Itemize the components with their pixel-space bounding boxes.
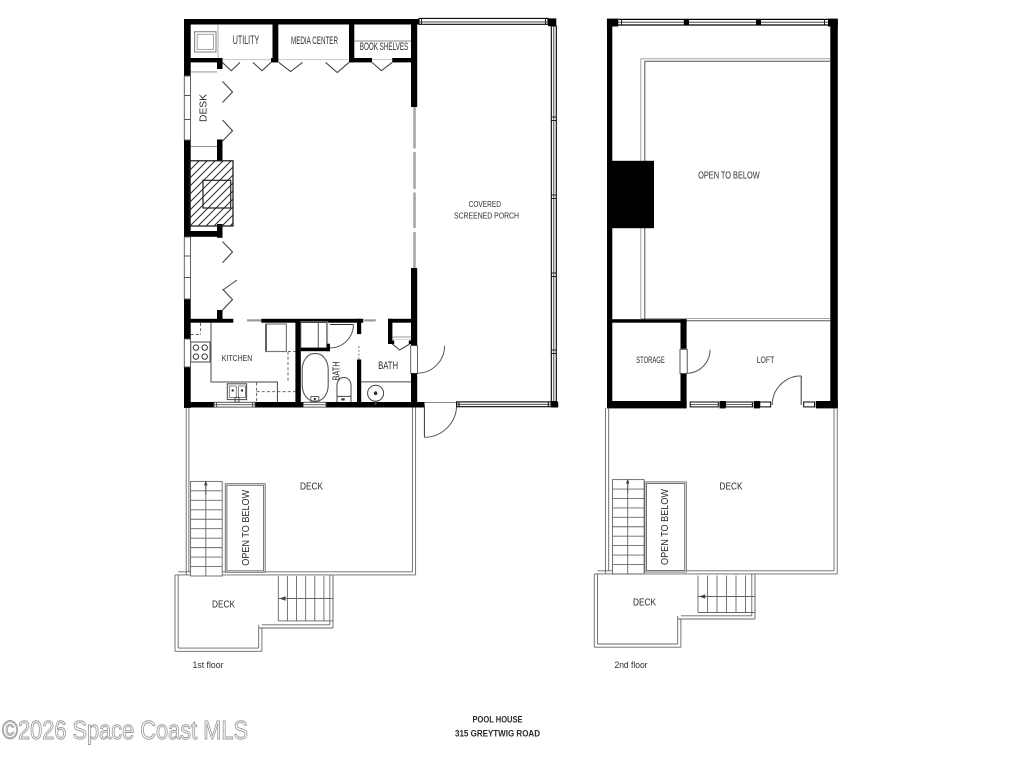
svg-text:LOFT: LOFT (757, 355, 775, 365)
svg-text:DECK: DECK (720, 481, 743, 492)
svg-text:OPEN TO BELOW: OPEN TO BELOW (241, 489, 252, 566)
svg-text:SCREENED PORCH: SCREENED PORCH (454, 212, 519, 221)
svg-text:OPEN TO BELOW: OPEN TO BELOW (698, 170, 760, 181)
svg-text:POOL HOUSE: POOL HOUSE (473, 715, 523, 726)
svg-text:2nd floor: 2nd floor (615, 660, 648, 670)
svg-text:BOOK SHELVES: BOOK SHELVES (360, 41, 409, 53)
svg-text:BATH: BATH (378, 360, 398, 372)
svg-text:©2026 Space Coast MLS: ©2026 Space Coast MLS (2, 717, 248, 745)
svg-text:DECK: DECK (300, 481, 323, 492)
svg-text:DECK: DECK (212, 599, 235, 610)
svg-text:STORAGE: STORAGE (636, 355, 665, 365)
svg-text:BATH: BATH (331, 362, 343, 381)
svg-text:OPEN TO BELOW: OPEN TO BELOW (660, 488, 671, 565)
svg-text:1st floor: 1st floor (193, 660, 224, 670)
svg-text:COVERED: COVERED (469, 200, 501, 209)
svg-text:DESK: DESK (199, 94, 210, 122)
svg-text:MEDIA CENTER: MEDIA CENTER (291, 35, 338, 47)
svg-text:UTILITY: UTILITY (233, 35, 260, 47)
svg-text:315 GREYTWIG ROAD: 315 GREYTWIG ROAD (455, 729, 540, 740)
svg-text:KITCHEN: KITCHEN (222, 353, 253, 363)
svg-text:DECK: DECK (633, 597, 656, 608)
